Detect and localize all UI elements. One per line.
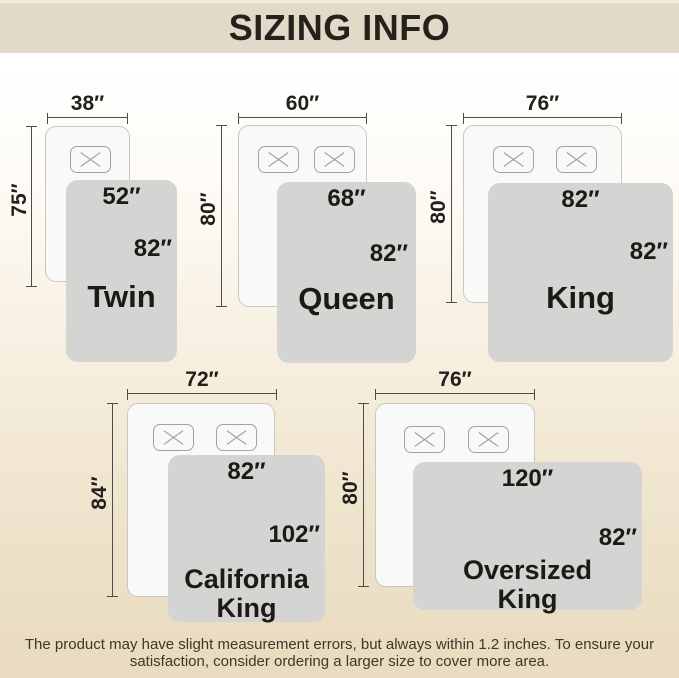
pillow-x-icon	[217, 425, 256, 450]
twin-blanket-length-label: 82″	[134, 235, 172, 263]
queen-bed-length-label: 80″	[197, 177, 221, 241]
king-blanket-length-label: 82″	[630, 238, 668, 266]
california-king-length-dimension-line	[112, 403, 113, 597]
pillow	[556, 146, 597, 173]
oversized-king-blanket: 120″ 82″ Oversized King	[413, 462, 642, 610]
queen-blanket-width-label: 68″	[277, 185, 416, 213]
california-king-bed-length-label: 84″	[88, 461, 112, 525]
california-king-blanket-length-label: 102″	[268, 521, 320, 549]
page-title: SIZING INFO	[229, 7, 451, 49]
pillow	[258, 146, 299, 173]
disclaimer-line2: satisfaction, consider ordering a larger…	[0, 653, 679, 670]
california-king-name-line1: California	[168, 565, 325, 594]
pillow	[216, 424, 257, 451]
queen-bed-width-label: 60″	[218, 92, 387, 116]
twin-width-dimension-line	[47, 117, 128, 118]
california-king-blanket-width-label: 82″	[168, 458, 325, 486]
twin-name-line1: Twin	[66, 280, 177, 313]
disclaimer-note: The product may have slight measurement …	[0, 636, 679, 671]
pillow-x-icon	[259, 147, 298, 172]
twin-name-label: Twin	[66, 280, 177, 313]
king-length-dimension-line	[451, 125, 452, 303]
king-bed-length-label: 80″	[427, 175, 451, 239]
king-name-line1: King	[488, 281, 673, 314]
california-king-blanket: 82″ 102″ California King	[168, 455, 325, 622]
queen-blanket-length-label: 82″	[370, 240, 408, 268]
pillow-x-icon	[557, 147, 596, 172]
sizing-info-infographic: SIZING INFO 38″ 75″ 52″ 82″ Twin 60″ 80″	[0, 0, 679, 678]
pillow-x-icon	[405, 427, 444, 452]
pillow	[153, 424, 194, 451]
king-width-dimension-line	[463, 117, 622, 118]
pillow	[70, 146, 111, 173]
pillow-x-icon	[469, 427, 508, 452]
pillow-x-icon	[71, 147, 110, 172]
pillow-x-icon	[315, 147, 354, 172]
twin-blanket: 52″ 82″ Twin	[66, 180, 177, 362]
king-bed-width-label: 76″	[443, 92, 642, 116]
california-king-name-line2: King	[168, 594, 325, 623]
oversized-king-name-line2: King	[413, 585, 642, 614]
king-blanket: 82″ 82″ King	[488, 183, 673, 362]
pillow	[468, 426, 509, 453]
pillow-x-icon	[494, 147, 533, 172]
twin-bed-width-label: 38″	[27, 92, 148, 116]
california-king-width-dimension-line	[127, 393, 277, 394]
twin-blanket-width-label: 52″	[66, 183, 177, 211]
pillow	[404, 426, 445, 453]
disclaimer-line1: The product may have slight measurement …	[0, 636, 679, 653]
california-king-name-label: California King	[168, 565, 325, 623]
oversized-king-width-dimension-line	[375, 393, 535, 394]
oversized-king-name-label: Oversized King	[413, 556, 642, 614]
oversized-king-bed-length-label: 80″	[339, 456, 363, 520]
queen-length-dimension-line	[221, 125, 222, 307]
california-king-bed-width-label: 72″	[107, 368, 297, 392]
queen-width-dimension-line	[238, 117, 367, 118]
queen-blanket: 68″ 82″ Queen	[277, 182, 416, 363]
oversized-king-length-dimension-line	[363, 403, 364, 587]
pillow	[493, 146, 534, 173]
header-banner: SIZING INFO	[0, 3, 679, 53]
king-blanket-width-label: 82″	[488, 186, 673, 214]
queen-name-line1: Queen	[277, 282, 416, 315]
pillow	[314, 146, 355, 173]
pillow-x-icon	[154, 425, 193, 450]
twin-bed-length-label: 75″	[8, 168, 32, 232]
oversized-king-name-line1: Oversized	[413, 556, 642, 585]
oversized-king-bed-width-label: 76″	[355, 368, 555, 392]
queen-name-label: Queen	[277, 282, 416, 315]
oversized-king-blanket-width-label: 120″	[413, 465, 642, 493]
king-name-label: King	[488, 281, 673, 314]
oversized-king-blanket-length-label: 82″	[599, 524, 637, 552]
